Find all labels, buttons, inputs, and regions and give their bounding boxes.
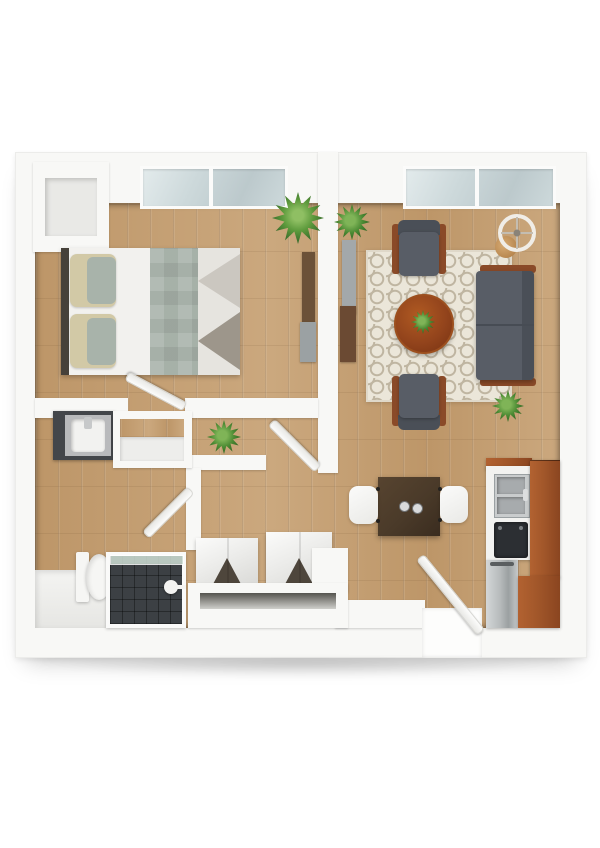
cooktop <box>494 522 528 558</box>
bedroom-window <box>140 166 288 209</box>
kitchen-sink <box>494 474 530 518</box>
sofa <box>476 265 540 386</box>
kitchen-counter <box>486 466 532 560</box>
shelf-ridge <box>299 532 301 588</box>
bedroom-wall-right <box>185 398 318 418</box>
armchair-bottom <box>392 372 446 430</box>
stove-knob <box>498 526 502 530</box>
headboard <box>61 248 69 375</box>
foot-throw <box>198 248 240 375</box>
media-console-bedroom <box>300 252 318 362</box>
throw-triangle <box>198 312 240 370</box>
armrest-cap <box>376 519 380 523</box>
faucet <box>84 417 92 429</box>
living-room-window <box>403 166 556 209</box>
cup <box>399 501 410 512</box>
console-wood <box>302 252 315 330</box>
plan-drop-shadow <box>30 660 570 678</box>
armrest-cap <box>376 487 380 491</box>
sage-runner <box>150 248 198 375</box>
closet-niche <box>113 411 192 468</box>
fridge-handle <box>490 562 514 566</box>
window-mullion <box>209 169 213 206</box>
dining-table <box>378 477 440 536</box>
stove-knob <box>519 526 523 530</box>
sink-bowl <box>497 477 525 494</box>
pillow-sage <box>87 257 116 304</box>
faucet <box>523 489 528 501</box>
armrest-cap <box>438 487 442 491</box>
base-cabinet <box>518 576 560 628</box>
walk-in-shower <box>106 552 186 628</box>
a-frame-shelf <box>196 538 258 588</box>
pillow <box>70 254 116 307</box>
vanity-sink <box>53 411 115 460</box>
shelf-ridge <box>227 538 229 588</box>
console-wood <box>340 306 356 362</box>
dining-chair-left <box>349 486 378 524</box>
floor-plan-image <box>0 0 600 848</box>
storage-counter <box>188 583 348 628</box>
armchair-top <box>392 220 446 278</box>
dining-chair-right <box>440 486 468 523</box>
closet-shelf <box>120 437 184 461</box>
utility-shaft <box>33 162 109 252</box>
pillow <box>70 314 116 368</box>
cup <box>412 503 423 514</box>
utility-shaft-interior <box>45 178 97 236</box>
sink-bowl <box>497 497 525 514</box>
floor-lamp <box>497 213 537 253</box>
media-console-living <box>340 240 358 362</box>
pillow-sage <box>87 318 116 365</box>
armrest-cap <box>438 518 442 522</box>
sofa-seam <box>476 324 534 326</box>
floor-plan <box>15 152 587 658</box>
throw-triangle <box>198 254 240 308</box>
closet-floor <box>120 419 184 437</box>
tall-cabinet <box>530 460 560 578</box>
partition-wall <box>318 152 338 473</box>
console-shelf <box>342 240 356 314</box>
double-bed <box>61 248 240 375</box>
chair-cushion <box>399 374 439 418</box>
shower-glass <box>110 555 184 565</box>
console-shelf <box>300 322 316 362</box>
window-mullion <box>475 169 479 206</box>
refrigerator <box>486 560 518 628</box>
shower-arm <box>174 585 186 589</box>
chair-cushion <box>399 232 439 276</box>
entry-wall <box>335 600 425 628</box>
counter-slot <box>200 593 336 609</box>
